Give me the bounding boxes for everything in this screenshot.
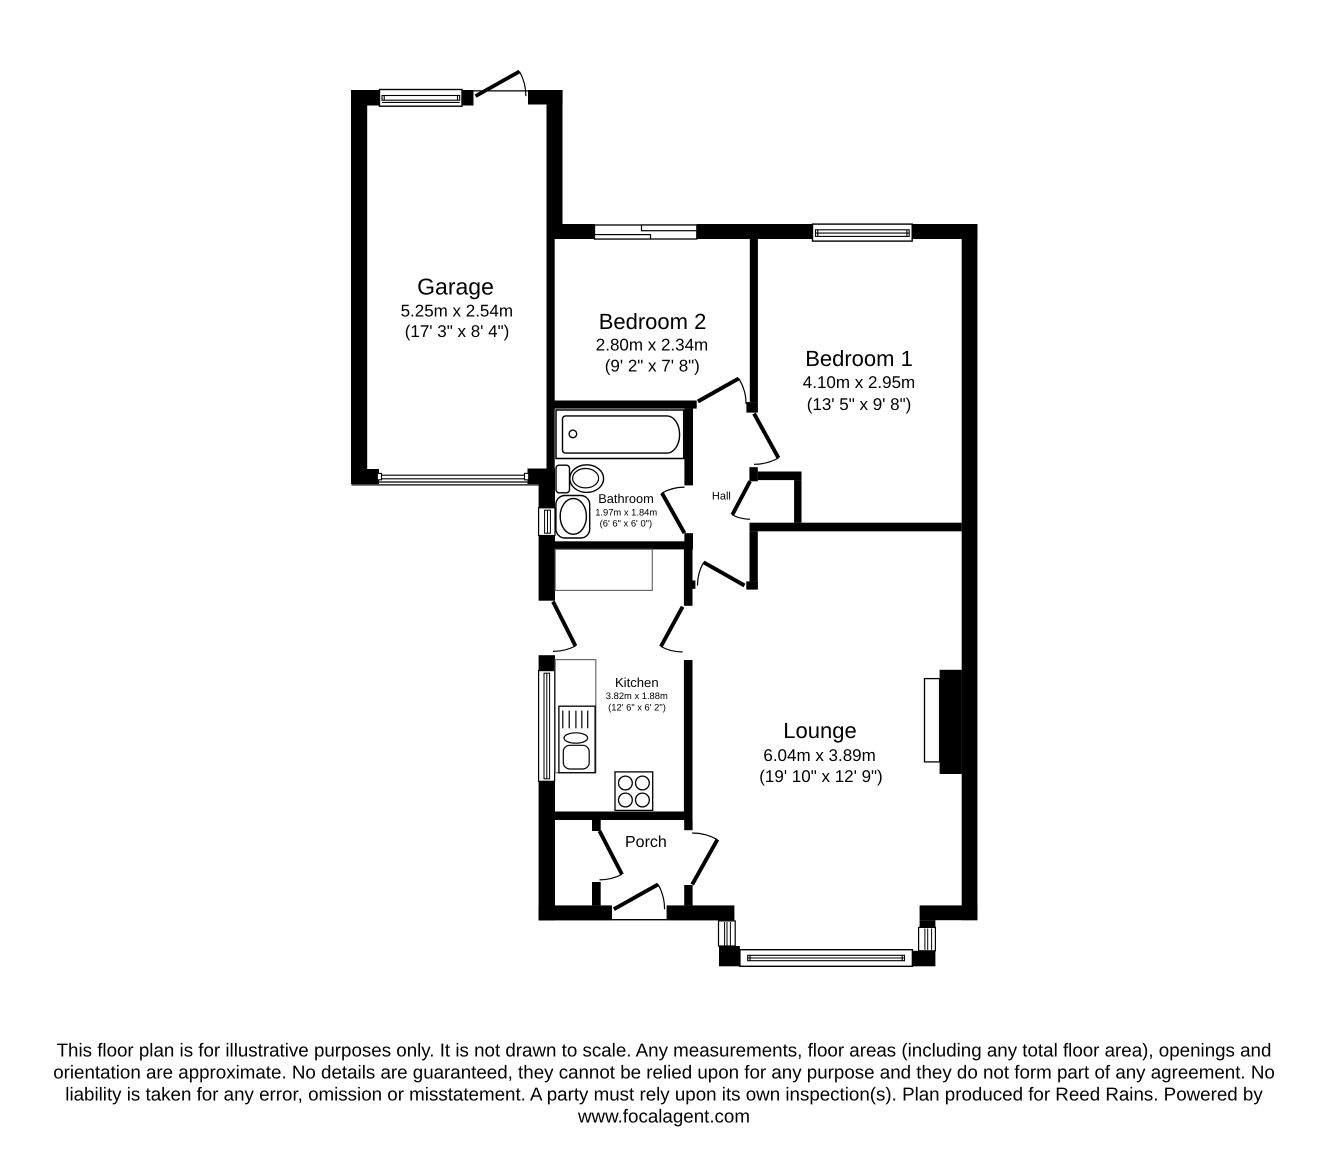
svg-text:liability is taken for any err: liability is taken for any error, omissi… — [65, 1084, 1263, 1105]
svg-text:(17' 3" x 8' 4"): (17' 3" x 8' 4") — [405, 322, 510, 341]
svg-text:www.focalagent.com: www.focalagent.com — [577, 1106, 750, 1127]
svg-text:Garage: Garage — [417, 274, 494, 300]
svg-text:3.82m x 1.88m: 3.82m x 1.88m — [606, 690, 668, 701]
svg-text:Bedroom 2: Bedroom 2 — [599, 309, 707, 334]
svg-text:(19' 10" x 12' 9"): (19' 10" x 12' 9") — [759, 767, 882, 786]
svg-text:4.10m x 2.95m: 4.10m x 2.95m — [803, 373, 915, 392]
svg-text:(12' 6" x 6' 2"): (12' 6" x 6' 2") — [608, 702, 666, 713]
svg-text:Bedroom 1: Bedroom 1 — [805, 346, 913, 371]
svg-text:Hall: Hall — [712, 491, 731, 503]
svg-text:(9' 2" x 7' 8"): (9' 2" x 7' 8") — [605, 357, 700, 376]
svg-text:1.97m x 1.84m: 1.97m x 1.84m — [595, 506, 657, 517]
svg-text:2.80m x 2.34m: 2.80m x 2.34m — [596, 335, 708, 354]
svg-text:(6' 6" x 6' 0"): (6' 6" x 6' 0") — [600, 518, 652, 529]
svg-text:orientation are approximate. N: orientation are approximate. No details … — [53, 1062, 1275, 1083]
svg-text:This floor plan is for illustr: This floor plan is for illustrative purp… — [57, 1040, 1272, 1061]
svg-text:5.25m x 2.54m: 5.25m x 2.54m — [401, 302, 513, 321]
svg-text:6.04m x 3.89m: 6.04m x 3.89m — [763, 746, 875, 765]
svg-text:Bathroom: Bathroom — [598, 491, 653, 506]
svg-text:Porch: Porch — [625, 834, 667, 851]
svg-text:(13' 5" x 9' 8"): (13' 5" x 9' 8") — [807, 395, 912, 414]
svg-text:Kitchen: Kitchen — [615, 675, 659, 690]
svg-text:Lounge: Lounge — [783, 718, 856, 743]
